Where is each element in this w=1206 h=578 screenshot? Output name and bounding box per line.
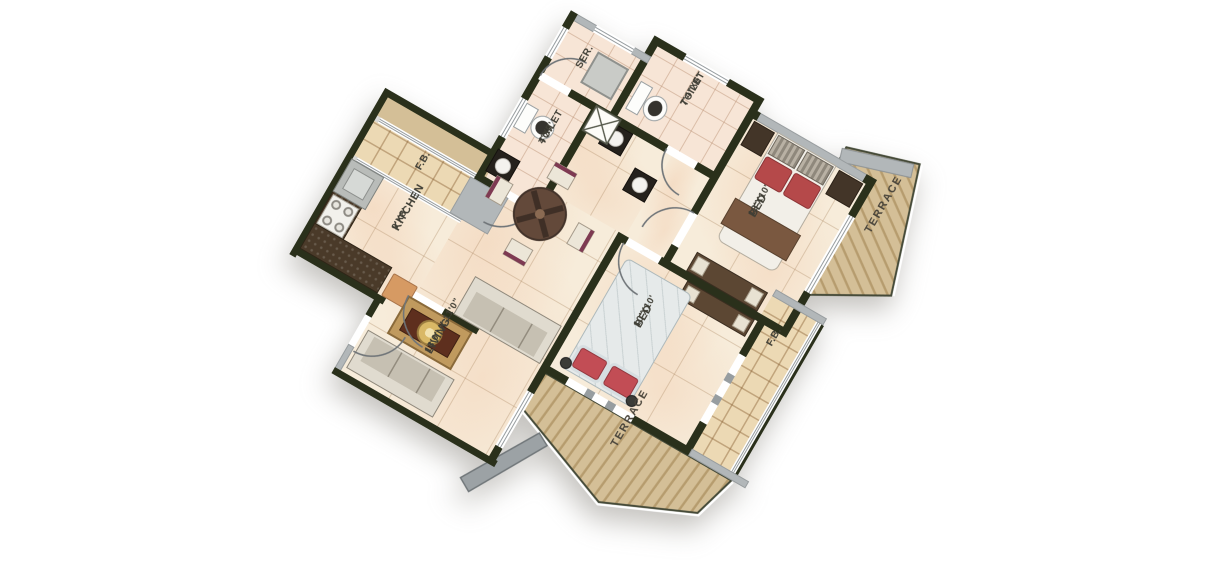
- door-layer: [219, 0, 959, 578]
- floor-plan: KITCHEN9'X8' LIVING18'0" X 11'0" BED12'X…: [219, 0, 959, 578]
- duct-shaft: [583, 106, 621, 144]
- dining-set: [465, 140, 615, 288]
- floorplan-image: KITCHEN9'X8' LIVING18'0" X 11'0" BED12'X…: [0, 0, 1206, 578]
